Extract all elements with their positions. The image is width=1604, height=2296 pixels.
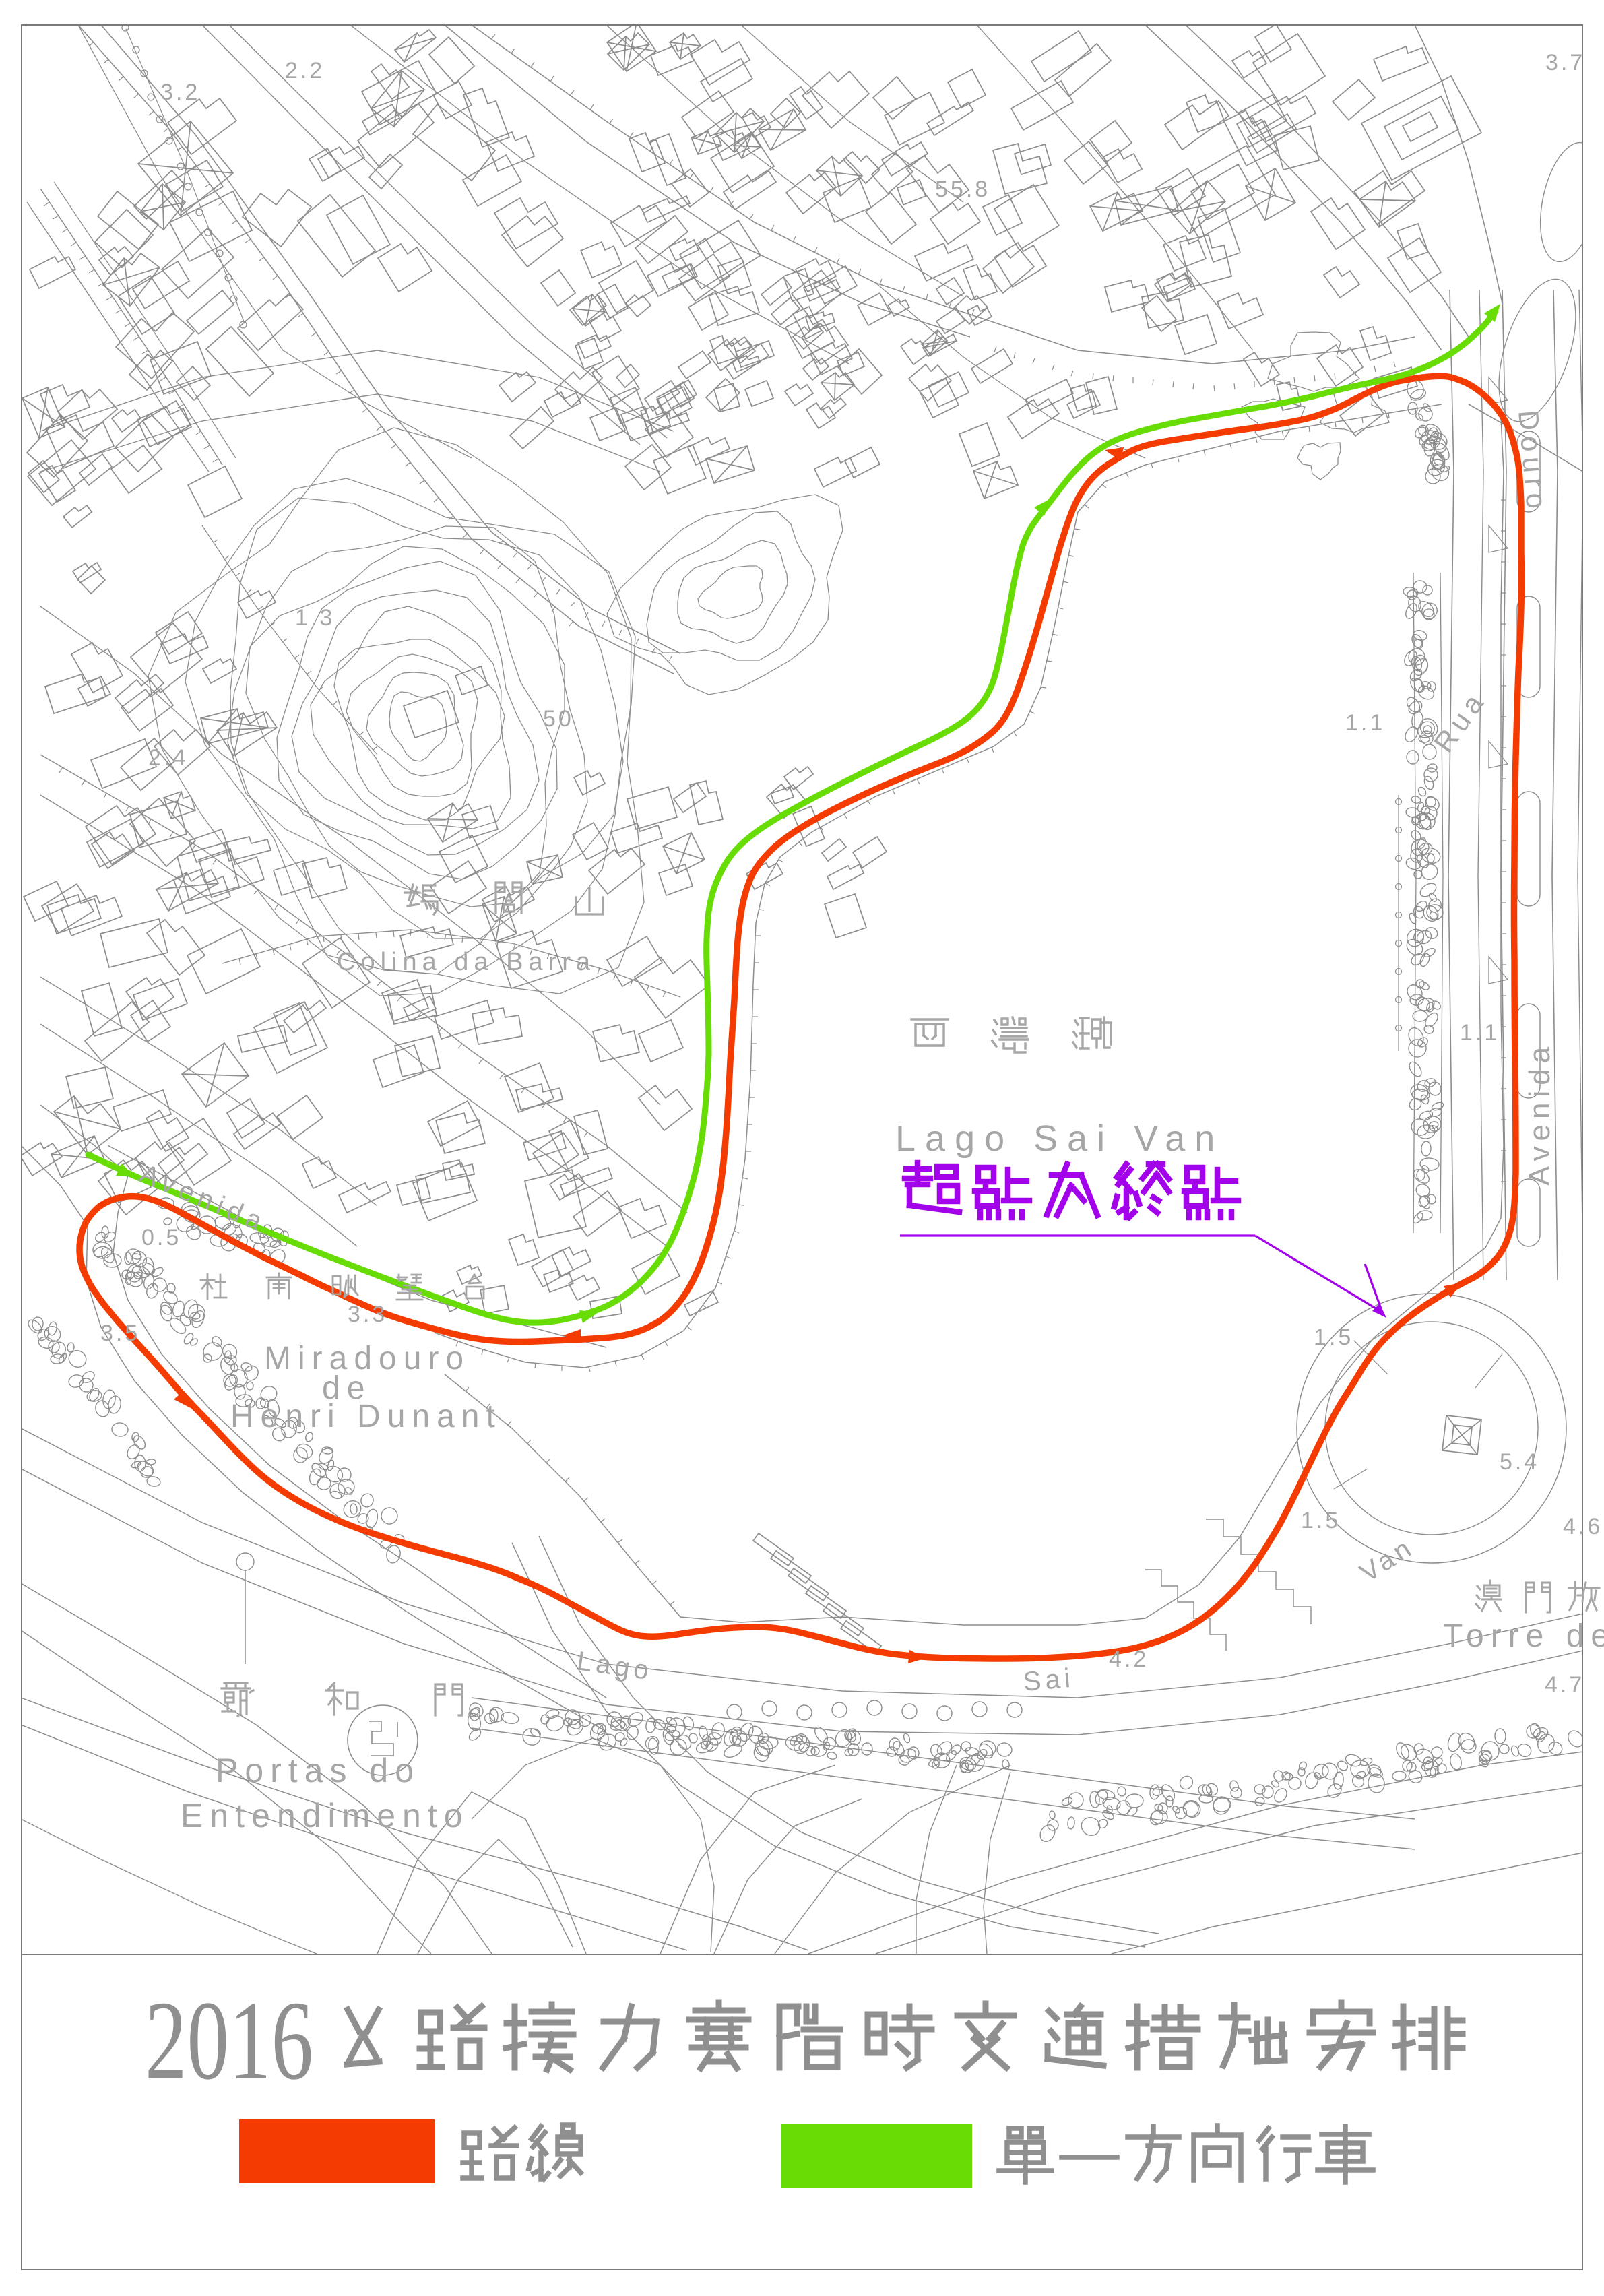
svg-text:1.1: 1.1 [1345,710,1385,736]
svg-text:1.1: 1.1 [1460,1020,1500,1046]
svg-text:4.7: 4.7 [1545,1672,1584,1698]
svg-text:3.7: 3.7 [1545,50,1585,75]
svg-text:3.3: 3.3 [348,1302,387,1327]
svg-text:1.5: 1.5 [1314,1325,1353,1350]
svg-text:1.3: 1.3 [295,605,335,631]
svg-text:Sai: Sai [1022,1663,1075,1697]
svg-text:Entendimento: Entendimento [181,1797,470,1835]
svg-text:50: 50 [543,706,574,732]
svg-text:2.2: 2.2 [285,58,325,84]
svg-text:0.5: 0.5 [141,1225,181,1250]
svg-text:1.5: 1.5 [1301,1508,1341,1533]
svg-text:Avenida: Avenida [1523,1042,1556,1186]
svg-text:Lago Sai Van: Lago Sai Van [895,1118,1224,1159]
svg-text:3.2: 3.2 [160,79,200,105]
svg-text:3.5: 3.5 [100,1320,140,1346]
svg-text:2016: 2016 [145,1978,313,2103]
svg-text:5.4: 5.4 [1500,1449,1539,1475]
svg-text:55.8: 55.8 [935,177,990,202]
svg-text:4.2: 4.2 [1109,1647,1149,1672]
svg-text:Henri Dunant: Henri Dunant [230,1399,502,1434]
svg-text:2.4: 2.4 [148,745,188,771]
svg-text:Torre de: Torre de [1443,1618,1604,1654]
svg-text:4.6: 4.6 [1563,1514,1603,1539]
svg-text:Portas do: Portas do [216,1752,420,1789]
svg-text:Colina da Barra: Colina da Barra [337,948,596,976]
